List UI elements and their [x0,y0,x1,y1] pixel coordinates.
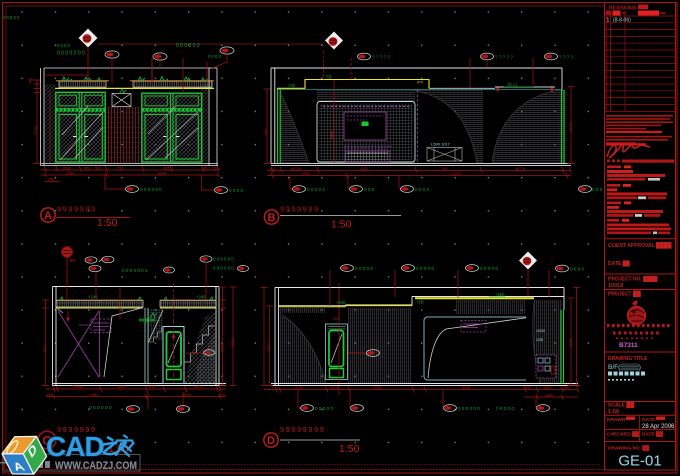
svg-text:1585: 1585 [90,393,98,397]
svg-text:. . . . .: . . . . . [496,60,504,64]
svg-text:0 0 0 0 0 0 0: 0 0 0 0 0 0 0 [57,51,85,57]
svg-text:12154: 12154 [450,172,461,176]
svg-text:. . . . . . .: . . . . . . . [58,57,70,61]
svg-text:500: 500 [95,166,101,170]
svg-text:D: D [267,435,275,447]
svg-text:A: A [44,210,52,222]
svg-text:DRAWING NO. ██: DRAWING NO. ██ [608,445,650,452]
svg-text:.......: ....... [281,211,307,216]
svg-text:10019: 10019 [608,283,623,289]
svg-text:2040: 2040 [295,386,303,390]
svg-text:CAD: CAD [46,431,104,462]
svg-text:150: 150 [46,393,52,397]
svg-text:1:50: 1:50 [97,217,118,229]
svg-text:WWW.CADZJ.COM: WWW.CADZJ.COM [55,460,137,472]
svg-text:450: 450 [84,166,90,170]
svg-text:3200: 3200 [230,337,235,347]
svg-text:2264: 2264 [66,171,74,175]
svg-text:+240: +240 [88,295,98,300]
svg-text:0 0 0 0: 0 0 0 0 [415,187,429,192]
svg-text:. . . . .: . . . . . [356,272,364,276]
svg-text:500: 500 [525,386,531,390]
svg-text:? ? ? ?: ? ? ? ? [559,55,573,60]
svg-text:PROJECT NO. ████: PROJECT NO. ████ [608,276,658,283]
svg-text:0 0 0 0 0: 0 0 0 0 0 [480,266,498,271]
svg-text:100: 100 [563,386,569,390]
svg-text:1: 1 [607,18,610,24]
svg-text:. . . . . .: . . . . . . [177,49,187,53]
svg-text:DATE ██: DATE ██ [642,431,663,438]
svg-text:B/F(▒▒▒▒): B/F(▒▒▒▒) [608,363,641,371]
svg-text:? ? ? ? ?: ? ? ? ? ? [372,55,390,60]
svg-text:2750: 2750 [33,125,38,135]
svg-text:210: 210 [219,393,225,397]
svg-text:0 0 0 0: 0 0 0 0 [57,43,70,48]
svg-text:12B: 12B [536,337,543,342]
svg-text:GE-01: GE-01 [618,453,661,470]
svg-text:2750: 2750 [220,342,225,352]
svg-text:2841: 2841 [568,337,573,347]
svg-text:0 0 0: 0 0 0 [592,187,603,192]
svg-text:500: 500 [442,167,448,171]
svg-text:300: 300 [333,316,340,321]
svg-text:0 0 0 0 0: 0 0 0 0 0 [315,406,333,411]
svg-text:500: 500 [270,167,276,171]
svg-text:. . . . . . .: . . . . . . . [123,274,135,278]
svg-text:+150: +150 [495,292,505,297]
svg-text:.......: ....... [58,213,84,218]
svg-text:150: 150 [212,166,218,170]
svg-text:0 0 0 0 0: 0 0 0 0 0 [355,266,373,271]
svg-text:1050: 1050 [302,172,310,176]
svg-text:1:50: 1:50 [331,219,352,231]
svg-text:2400: 2400 [568,122,573,132]
svg-text:PROJECT ██: PROJECT ██ [608,291,641,298]
svg-text:. . . . . .: . . . . . . [214,271,224,275]
svg-text:0 0 0 0 0 0: 0 0 0 0 0 0 [140,187,162,192]
svg-text:CLIENT APPROVAL ████: CLIENT APPROVAL ████ [608,242,672,249]
svg-text:. . . . .: . . . . . [316,412,324,416]
svg-text:DATE: DATE [642,417,656,423]
svg-text:0 0 0 0 0 0 0: 0 0 0 0 0 0 0 [122,268,148,273]
svg-text:589: 589 [329,131,335,139]
svg-text:0 0 0 0 0: 0 0 0 0 0 [307,187,325,192]
svg-text:0 0 0 0: 0 0 0 0 [229,188,243,193]
svg-text:? ? ? ? ?: ? ? ? ? ? [495,55,513,60]
svg-text:. . . . . .: . . . . . . [90,411,100,415]
svg-text:1000: 1000 [543,386,551,390]
svg-text:250: 250 [48,178,54,182]
svg-text:8975e: 8975e [291,167,302,171]
svg-text:0 0 0 0: 0 0 0 0 [208,54,221,59]
svg-text:. . . .: . . . . [560,60,566,64]
svg-text:800: 800 [149,385,155,389]
svg-text:DATE ██: DATE ██ [608,260,630,267]
svg-text:B: B [268,212,276,224]
svg-text:2098: 2098 [62,166,70,170]
svg-text:0 0 0: 0 0 0 [364,187,375,192]
svg-text:00|0000: 00|0000 [139,318,156,323]
svg-text:1200: 1200 [536,328,546,333]
svg-text:+240: +240 [336,300,346,305]
svg-text:. . . .: . . . . [571,272,577,276]
svg-text:0 0 0 0 0 0: 0 0 0 0 0 0 [213,266,234,271]
svg-text:1075: 1075 [330,386,338,390]
svg-text:. . . . .: . . . . . [481,272,489,276]
svg-text:756: 756 [117,166,123,170]
svg-text:2670: 2670 [163,166,171,170]
svg-text:L500 1017: L500 1017 [431,142,451,147]
svg-text:4548: 4548 [462,386,470,390]
svg-text:3000: 3000 [266,342,271,352]
svg-text:1:50: 1:50 [608,409,619,415]
svg-text:+1B: +1B [416,299,424,304]
svg-text:950: 950 [42,345,47,352]
svg-text:500: 500 [263,128,268,135]
svg-text:1060: 1060 [545,393,553,397]
svg-text:........: ........ [281,433,311,438]
svg-text:1900: 1900 [117,385,125,389]
svg-text:99: 99 [70,258,76,263]
svg-text:C|L: C|L [326,74,333,79]
svg-text:8400: 8400 [194,385,202,389]
svg-text:6930: 6930 [183,393,191,397]
svg-text:B7311: B7311 [619,342,638,349]
svg-text:3300: 3300 [158,171,166,175]
svg-text:+240: +240 [196,295,206,300]
svg-text:gw|: gw| [417,79,423,84]
svg-text:. . . . .: . . . . . [497,412,505,416]
svg-text:. . . . .: . . . . . [417,272,425,276]
svg-text:+20: +20 [288,83,296,88]
svg-text:0 0 0 0 0: 0 0 0 0 0 [496,406,514,411]
svg-text:700Hz: 700Hz [72,385,83,389]
svg-text:4463: 4463 [360,167,368,171]
svg-text:2535: 2535 [373,386,381,390]
svg-text:CHECKED ██: CHECKED ██ [607,431,639,438]
svg-text:. . . . .: . . . . . [373,60,381,64]
svg-text:[C.L]: [C.L] [508,82,517,87]
svg-text:0 0 0 0 0 0: 0 0 0 0 0 0 [213,257,234,262]
svg-text:0 0 0 0 0: 0 0 0 0 0 [3,15,20,20]
svg-text:. . . . . .: . . . . . . [459,412,469,416]
svg-text:. . . .: . . . . [209,60,216,64]
svg-text:(8-8-06): (8-8-06) [613,18,631,24]
svg-text:450: 450 [203,166,209,170]
svg-text:1:50: 1:50 [339,443,360,455]
svg-text:0 0 0 0: 0 0 0 0 [570,267,584,272]
svg-text:5877e: 5877e [515,167,526,171]
svg-text:0 0 0 0 0 0: 0 0 0 0 0 0 [458,406,480,411]
svg-text:DRAWN: DRAWN [607,417,626,423]
svg-text:0 0 0 0 0: 0 0 0 0 0 [416,266,434,271]
svg-text:SCALE ██: SCALE ██ [608,402,634,409]
svg-text:DRAWING TITLE: DRAWING TITLE [608,356,648,362]
